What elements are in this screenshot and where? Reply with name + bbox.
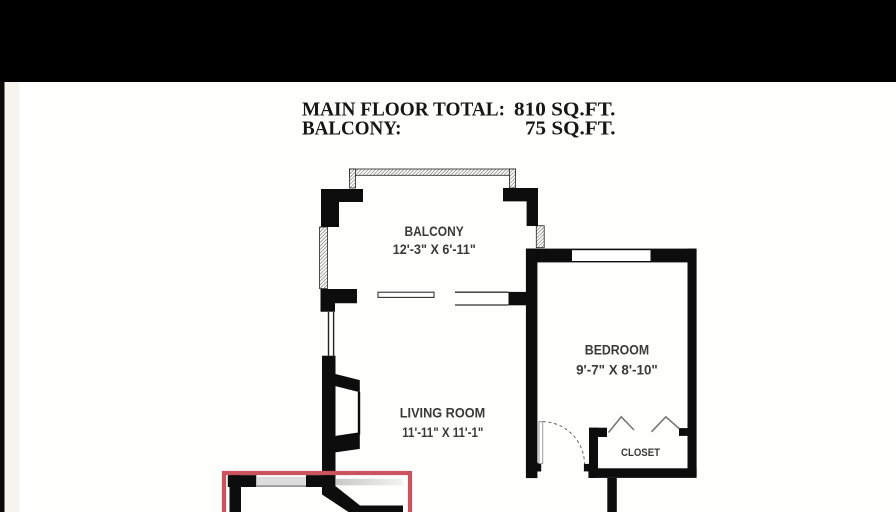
svg-text:12'-3" X 6'-11": 12'-3" X 6'-11"	[393, 241, 476, 257]
svg-text:75 SQ.FT.: 75 SQ.FT.	[525, 117, 616, 139]
svg-text:LIVING ROOM: LIVING ROOM	[400, 406, 485, 421]
svg-text:CLOSET: CLOSET	[621, 447, 660, 459]
svg-text:BEDROOM: BEDROOM	[585, 343, 649, 358]
svg-text:11'-11" X 11'-1": 11'-11" X 11'-1"	[402, 424, 483, 440]
svg-text:9'-7" X 8'-10": 9'-7" X 8'-10"	[576, 361, 658, 377]
svg-text:BALCONY: BALCONY	[405, 224, 464, 239]
svg-text:BALCONY:: BALCONY:	[302, 117, 402, 139]
